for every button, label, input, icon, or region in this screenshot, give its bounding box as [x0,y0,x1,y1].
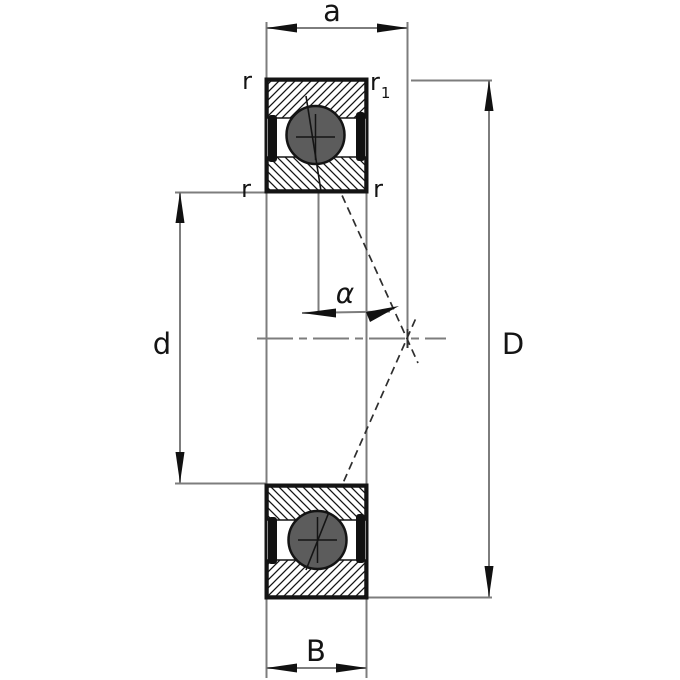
D-label: D [502,327,524,361]
angle-alpha: α [302,277,399,322]
B-arrow-left [266,664,297,673]
r1-subscript: 1 [381,84,391,102]
seal-left-bottom [268,517,277,564]
a-label: a [323,0,341,28]
r1-base: r [370,68,380,96]
D-arrow-top [485,80,494,111]
d-arrow-top [176,192,185,223]
bearing-section-top [266,79,367,192]
alpha-label: α [336,277,355,310]
r-label-top-left: r [242,67,252,95]
r-label-mid-right: r [373,175,383,203]
dimension-d: d [153,192,185,483]
d-label: d [153,327,171,361]
axis-centerline [257,329,446,348]
r1-label: r1 [370,68,390,102]
seal-left-top [268,115,277,162]
a-arrow-left [266,24,297,33]
dimension-a: a [266,0,408,33]
seal-right-top [356,112,365,161]
dimension-B: B [266,634,367,673]
a-arrow-right [377,24,408,33]
alpha-arrow-right [366,306,399,322]
bearing-diagram-canvas: a d D B α r r1 r r [0,0,680,680]
dimension-D: D [485,80,525,597]
seal-right-bottom [356,514,365,563]
B-label: B [306,634,326,668]
bearing-diagram: a d D B α r r1 r r [0,0,680,680]
B-arrow-right [336,664,367,673]
r-label-mid-left: r [241,175,251,203]
D-arrow-bottom [485,566,494,597]
bearing-section-bottom [266,485,367,598]
d-arrow-bottom [176,452,185,483]
